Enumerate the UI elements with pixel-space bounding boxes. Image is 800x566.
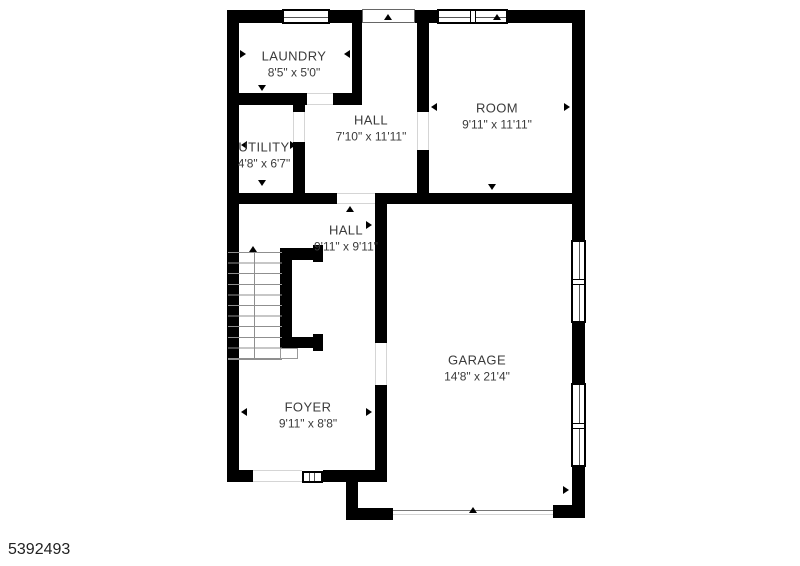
floor-plan-canvas: LAUNDRY 8'5" x 5'0" HALL 7'10" x 11'11" … — [0, 0, 800, 566]
room-name: FOYER — [279, 400, 337, 415]
wall-mid-left — [227, 193, 337, 204]
room-label-hall-upper: HALL 7'10" x 11'11" — [336, 113, 407, 144]
wall-foyer-bottom-right — [323, 470, 387, 482]
garage-door-jamb — [375, 343, 376, 385]
room-label-utility: UTILITY 4'8" x 6'7" — [238, 140, 290, 171]
wall-laundry-bottom — [227, 93, 307, 105]
wall-bottom-right — [553, 505, 585, 518]
wall-stairwell-cap-bottom — [313, 334, 323, 351]
front-door — [302, 471, 323, 483]
stairs-up-arrow-icon — [249, 246, 257, 252]
garage-overhead-door-shadow — [393, 514, 553, 515]
laundry-door-jamb — [307, 93, 333, 94]
staircase-centerline — [254, 252, 255, 359]
entry-threshold — [253, 470, 302, 471]
window-garage-lower — [571, 383, 586, 467]
room-name: LAUNDRY — [262, 49, 327, 64]
room-dims: 9'11" x 9'11" — [314, 240, 378, 254]
wall-right-a — [572, 10, 585, 240]
room-door-jamb — [417, 112, 418, 150]
dimension-tick — [344, 50, 350, 58]
dimension-tick — [469, 507, 477, 513]
dimension-tick — [258, 85, 266, 91]
window-divider — [573, 423, 584, 429]
room-dims: 4'8" x 6'7" — [238, 157, 290, 171]
dimension-tick — [493, 14, 501, 20]
wall-utility-right-stub — [293, 105, 305, 112]
room-label-garage: GARAGE 14'8" x 21'4" — [444, 353, 510, 384]
wall-room-left-a — [417, 23, 429, 112]
garage-door-jamb — [386, 343, 387, 385]
wall-left — [227, 10, 239, 482]
dimension-tick — [431, 103, 437, 111]
hall-opening-line — [337, 193, 375, 194]
wall-foyer-bottom-left — [227, 470, 253, 482]
window-divider — [573, 279, 584, 285]
hall-opening-line — [337, 203, 375, 204]
room-label-room: ROOM 9'11" x 11'11" — [462, 101, 532, 132]
room-dims: 9'11" x 8'8" — [279, 417, 337, 431]
listing-id: 5392493 — [8, 541, 70, 559]
window-divider — [470, 11, 476, 22]
room-name: HALL — [336, 113, 407, 128]
entry-threshold — [253, 481, 302, 482]
dimension-tick — [563, 486, 569, 494]
dimension-tick — [366, 408, 372, 416]
window-laundry — [282, 9, 330, 24]
room-name: HALL — [314, 223, 378, 238]
dimension-tick — [488, 184, 496, 190]
wall-entry-alcove-bottom — [346, 508, 393, 520]
wall-garage-top — [375, 193, 585, 204]
wall-room-left-b — [417, 150, 429, 193]
staircase — [228, 252, 282, 360]
room-dims: 7'10" x 11'11" — [336, 130, 407, 144]
wall-top-c — [415, 10, 437, 23]
utility-door-jamb — [293, 112, 294, 142]
room-label-hall-lower: HALL 9'11" x 9'11" — [314, 223, 378, 254]
dimension-tick — [346, 206, 354, 212]
room-dims: 14'8" x 21'4" — [444, 370, 510, 384]
wall-right-b — [572, 323, 585, 383]
wall-garage-left-b — [375, 385, 387, 470]
dimension-tick — [258, 180, 266, 186]
window-garage-upper — [571, 240, 586, 323]
room-name: UTILITY — [238, 140, 290, 155]
front-door-panel — [314, 473, 315, 481]
dimension-tick — [240, 50, 246, 58]
dimension-tick — [384, 14, 392, 20]
utility-door-jamb — [304, 112, 305, 142]
dimension-tick — [241, 408, 247, 416]
room-name: ROOM — [462, 101, 532, 116]
dimension-tick — [290, 141, 296, 149]
room-dims: 8'5" x 5'0" — [262, 66, 327, 80]
dimension-tick — [564, 103, 570, 111]
room-dims: 9'11" x 11'11" — [462, 118, 532, 132]
window-mullion — [284, 17, 328, 18]
room-label-foyer: FOYER 9'11" x 8'8" — [279, 400, 337, 431]
staircase-landing — [280, 348, 298, 359]
room-door-jamb — [428, 112, 429, 150]
room-name: GARAGE — [444, 353, 510, 368]
front-door-panel — [309, 473, 310, 481]
wall-top-b — [330, 10, 362, 23]
room-label-laundry: LAUNDRY 8'5" x 5'0" — [262, 49, 327, 80]
wall-laundry-foot — [333, 93, 362, 105]
laundry-door-jamb — [307, 104, 333, 105]
